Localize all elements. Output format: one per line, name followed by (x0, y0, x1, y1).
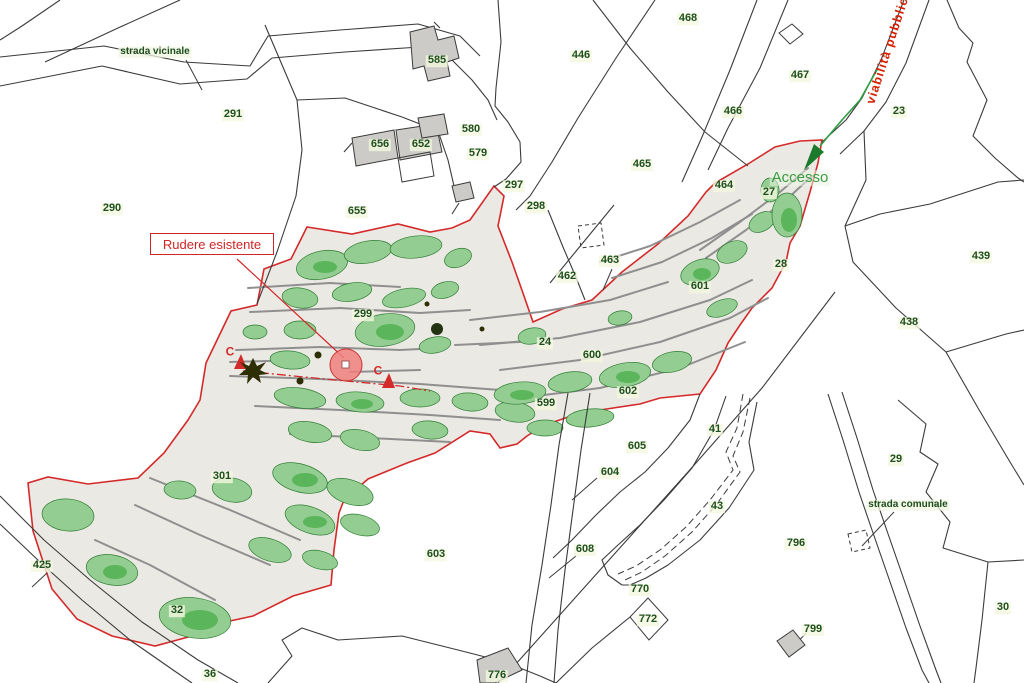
building-652-upper (418, 114, 448, 138)
map-canvas (0, 0, 1024, 683)
building-diamond-topright (779, 24, 803, 44)
building-585 (410, 26, 459, 81)
access-route (804, 68, 878, 170)
building-772-diamond (630, 598, 668, 640)
building-776 (477, 648, 522, 683)
building-297 (452, 182, 474, 202)
building-656 (352, 130, 398, 166)
ruin-annotation-text: Rudere esistente (163, 237, 261, 252)
ruin-marker-center (342, 361, 349, 368)
cadastral-map: 2912905856566525805792972986554684464674… (0, 0, 1024, 683)
ruin-annotation-box: Rudere esistente (150, 233, 274, 255)
building-799 (777, 630, 805, 657)
